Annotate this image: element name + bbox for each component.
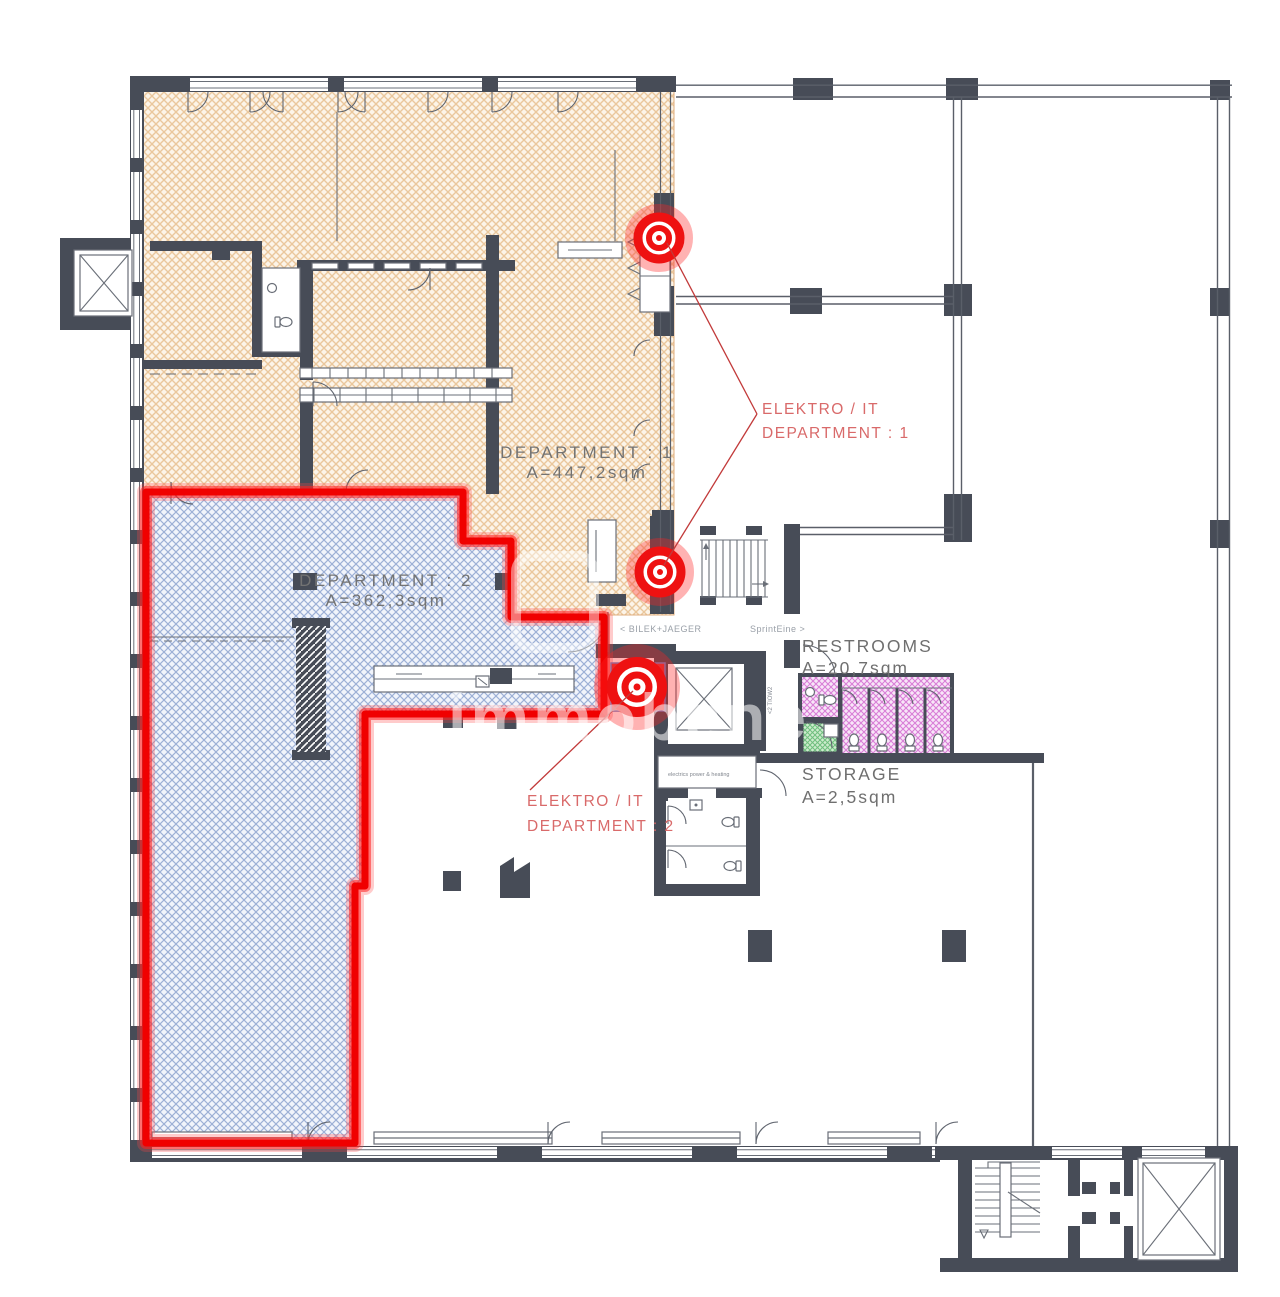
department-1-area: A=447,2sqm <box>527 463 648 482</box>
department-2-label: DEPARTMENT : 2 <box>299 571 473 590</box>
elektro-1-label-line1: ELEKTRO / IT <box>762 401 879 418</box>
storage-area: A=2,5sqm <box>802 787 897 807</box>
elektro-2-label-line2: DEPARTMENT : 2 <box>527 818 675 835</box>
vertical-corridor-label: <2 TIOW2 <box>768 686 774 714</box>
corridor-label-left: < BILEK+JAEGER <box>620 624 702 634</box>
elektro-target-1 <box>631 210 687 266</box>
shaft-pillar <box>296 626 326 752</box>
glass-partitions <box>661 85 1233 1146</box>
department-2-area: A=362,3sqm <box>326 591 447 610</box>
corridor-label-right: SprintEine > <box>750 624 805 634</box>
elektro-1-label-line2: DEPARTMENT : 1 <box>762 425 910 442</box>
restrooms-label: RESTROOMS <box>802 636 933 656</box>
restrooms-area: A=20,7sqm <box>802 658 909 678</box>
svg-text:immobene: immobene <box>448 680 810 754</box>
elektro-target-2 <box>632 544 688 600</box>
middle-stairs <box>700 540 769 597</box>
floor-plan: immobene DEPARTMENT : 1 A=447,2sqm DEPAR… <box>0 0 1280 1297</box>
storage-label: STORAGE <box>802 764 901 784</box>
floor-plan-svg: immobene DEPARTMENT : 1 A=447,2sqm DEPAR… <box>0 0 1280 1297</box>
elektro-2-label-line1: ELEKTRO / IT <box>527 793 644 810</box>
department-1-label: DEPARTMENT : 1 <box>500 443 674 462</box>
utility-room-label: electrics power & heating <box>668 772 729 778</box>
bottom-right-stairs <box>975 1162 1040 1238</box>
